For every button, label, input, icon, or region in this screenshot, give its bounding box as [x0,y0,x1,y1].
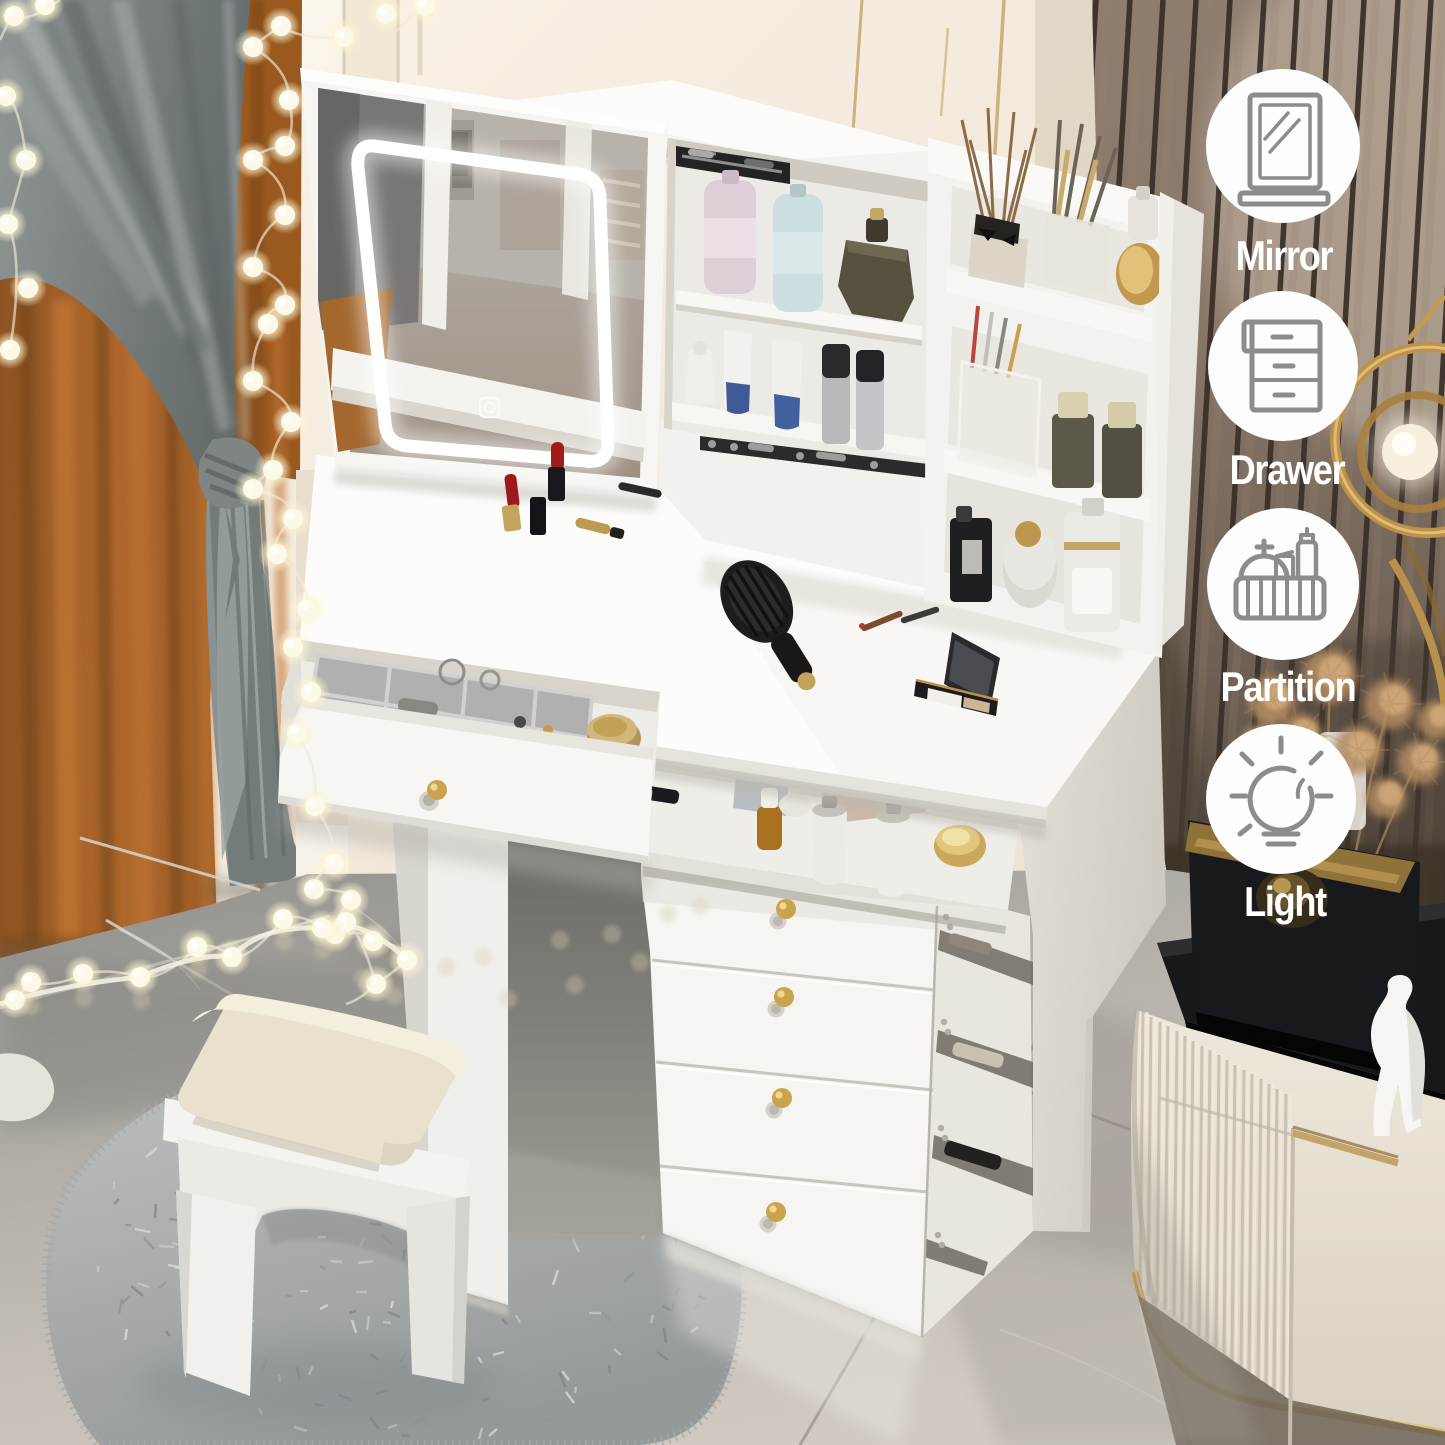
svg-text:Light: Light [1244,880,1327,926]
svg-text:Mirror: Mirror [1236,234,1334,280]
svg-text:Partition: Partition [1221,665,1356,711]
svg-text:Drawer: Drawer [1230,448,1346,494]
